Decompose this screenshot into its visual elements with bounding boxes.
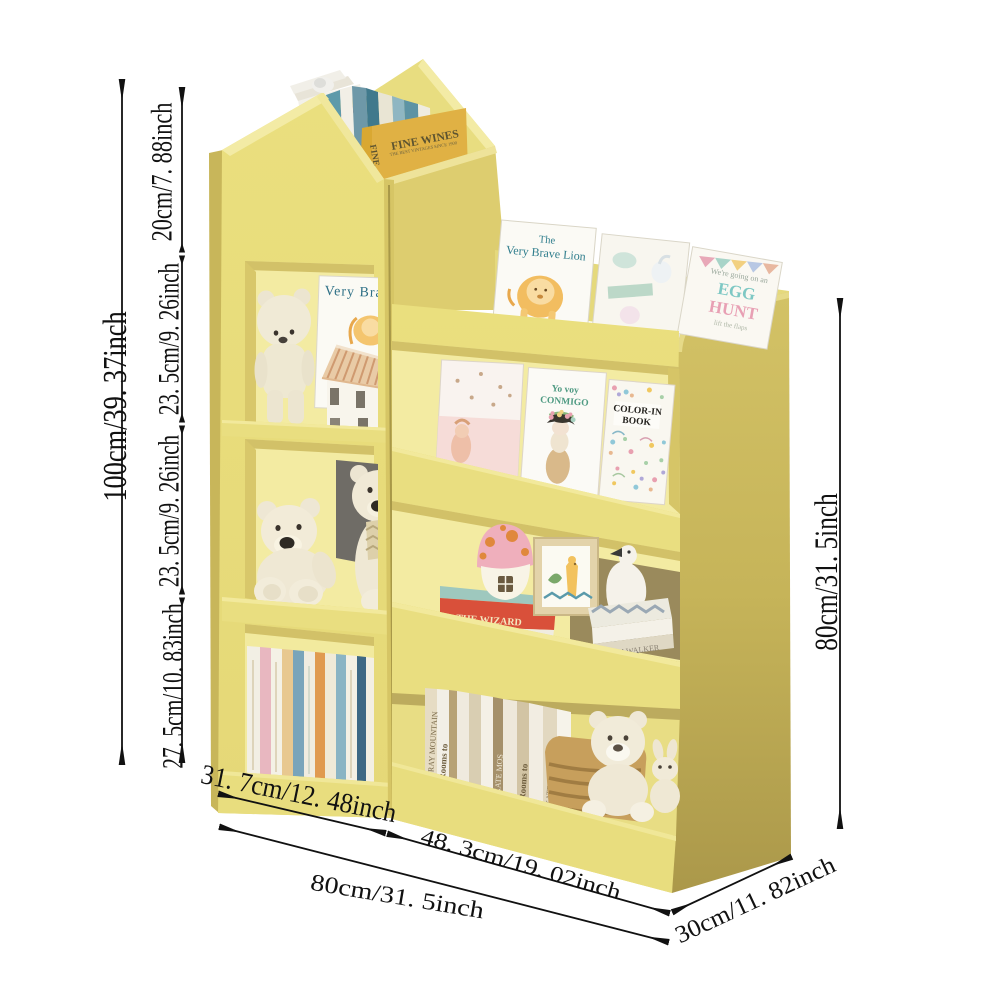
svg-text:80cm/31. 5inch: 80cm/31. 5inch	[809, 493, 845, 651]
svg-text:20cm/7. 88inch: 20cm/7. 88inch	[146, 103, 179, 242]
svg-text:100cm/39. 37inch: 100cm/39. 37inch	[96, 311, 134, 501]
svg-text:Yo voy: Yo voy	[551, 384, 579, 396]
svg-text:23. 5cm/9. 26inch: 23. 5cm/9. 26inch	[152, 435, 185, 587]
svg-text:27. 5cm/10. 83inch: 27. 5cm/10. 83inch	[156, 603, 189, 769]
svg-text:23. 5cm/9. 26inch: 23. 5cm/9. 26inch	[152, 263, 185, 415]
